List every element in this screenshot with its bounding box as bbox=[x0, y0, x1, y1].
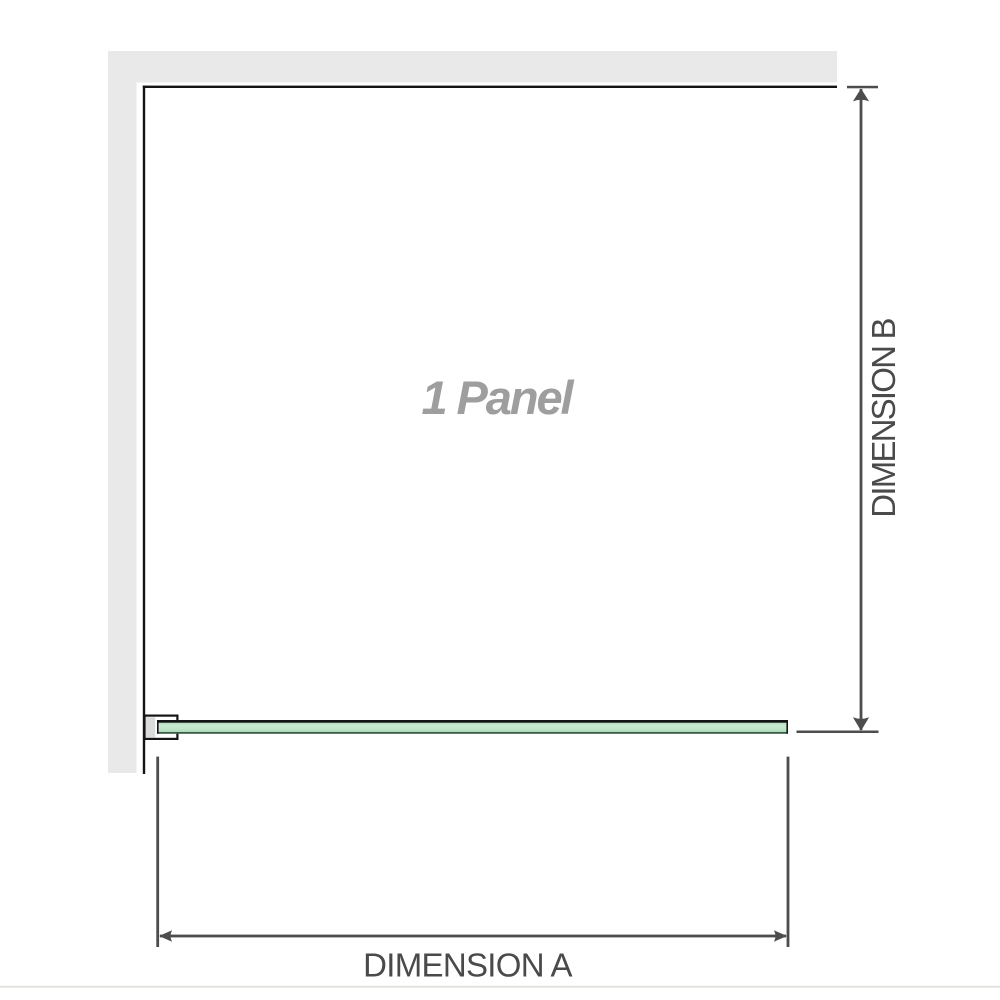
svg-text:DIMENSION B: DIMENSION B bbox=[865, 319, 902, 518]
svg-text:DIMENSION A: DIMENSION A bbox=[363, 947, 572, 984]
svg-text:1 Panel: 1 Panel bbox=[422, 371, 575, 424]
